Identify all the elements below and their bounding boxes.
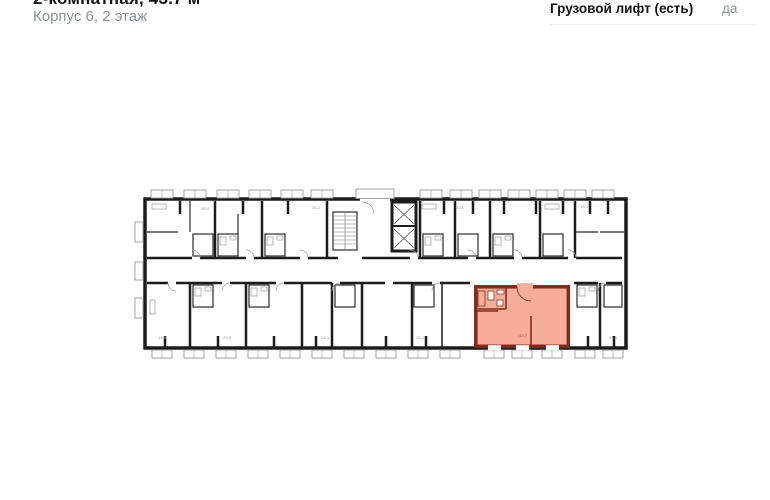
room-area-label: 38.4 <box>321 335 330 340</box>
room-area-label: 38.4 <box>201 206 210 211</box>
room-area-label: 41.3 <box>609 335 618 340</box>
listing-floorplan-page: 2-комнатная, 43.7 м² Корпус 6, 2 этаж Гр… <box>0 0 770 500</box>
room-area-label: 34.3 <box>158 335 167 340</box>
selected-apartment[interactable] <box>474 283 568 350</box>
stairwell <box>333 212 357 250</box>
selected-apartment-area-label: 43.7 <box>519 333 528 338</box>
room-area-label: 38.3 <box>580 204 589 209</box>
floor-plan: 38.4 36.2 30.1 38.3 34.3 29.8 38.4 25.4 … <box>0 0 770 500</box>
room-area-label: 25.4 <box>416 335 425 340</box>
room-area-label: 30.1 <box>456 205 465 210</box>
entrance-porch <box>356 189 394 214</box>
room-area-label: 36.2 <box>312 205 321 210</box>
elevator-shafts <box>392 202 416 251</box>
room-area-label: 29.8 <box>223 335 232 340</box>
